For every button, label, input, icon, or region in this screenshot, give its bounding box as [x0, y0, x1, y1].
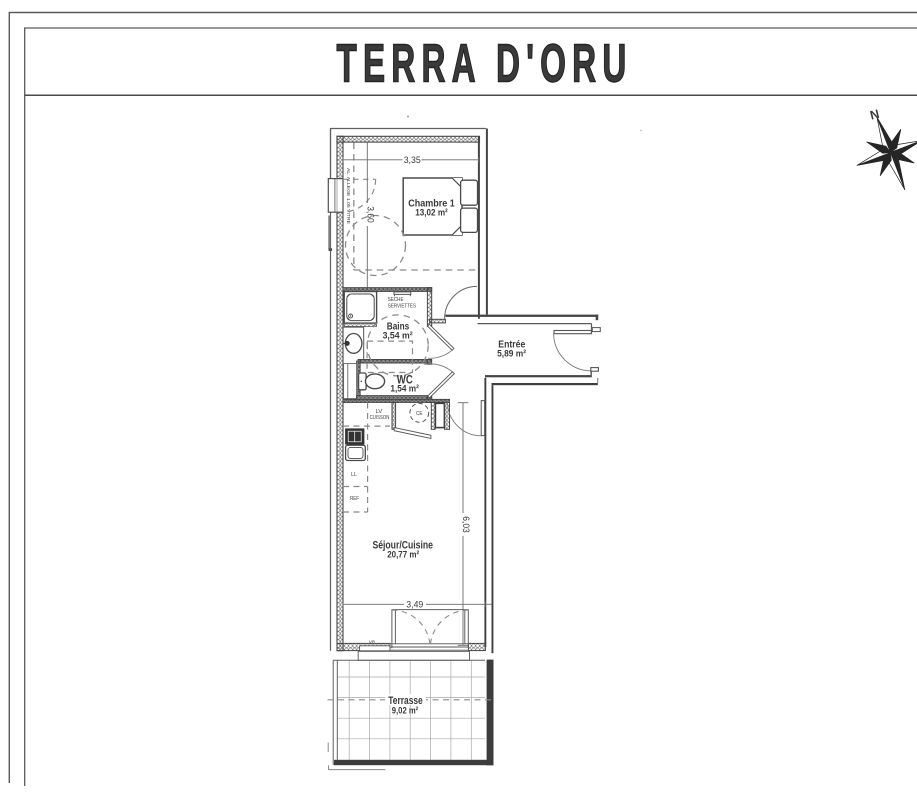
- svg-text:3,35: 3,35: [404, 155, 421, 165]
- svg-text:LV: LV: [376, 409, 383, 415]
- svg-text:CUISSON: CUISSON: [370, 415, 390, 421]
- svg-text:TERRA D'ORU: TERRA D'ORU: [337, 35, 633, 94]
- svg-text:5,89 m²: 5,89 m²: [497, 349, 526, 359]
- svg-text:CE: CE: [416, 411, 423, 417]
- svg-text:REF: REF: [350, 496, 359, 502]
- svg-text:LL: LL: [351, 472, 357, 478]
- svg-text:9,02 m²: 9,02 m²: [392, 704, 419, 715]
- svg-text:13,02 m²: 13,02 m²: [415, 208, 448, 218]
- svg-text:3,49: 3,49: [406, 600, 423, 610]
- svg-text:SERVIETTES: SERVIETTES: [388, 303, 417, 309]
- svg-text:3,60: 3,60: [366, 206, 376, 223]
- svg-text:3,54 m²: 3,54 m²: [383, 330, 413, 340]
- svg-text:AL. ALLEGE 1.05 VITRE: AL. ALLEGE 1.05 VITRE: [346, 168, 351, 224]
- svg-text:1,54 m²: 1,54 m²: [390, 383, 419, 393]
- svg-text:N: N: [869, 107, 881, 123]
- svg-text:SECHE: SECHE: [388, 297, 404, 303]
- svg-text:20,77 m²: 20,77 m²: [387, 549, 419, 560]
- svg-text:VR: VR: [369, 639, 376, 645]
- svg-text:6,03: 6,03: [461, 516, 471, 533]
